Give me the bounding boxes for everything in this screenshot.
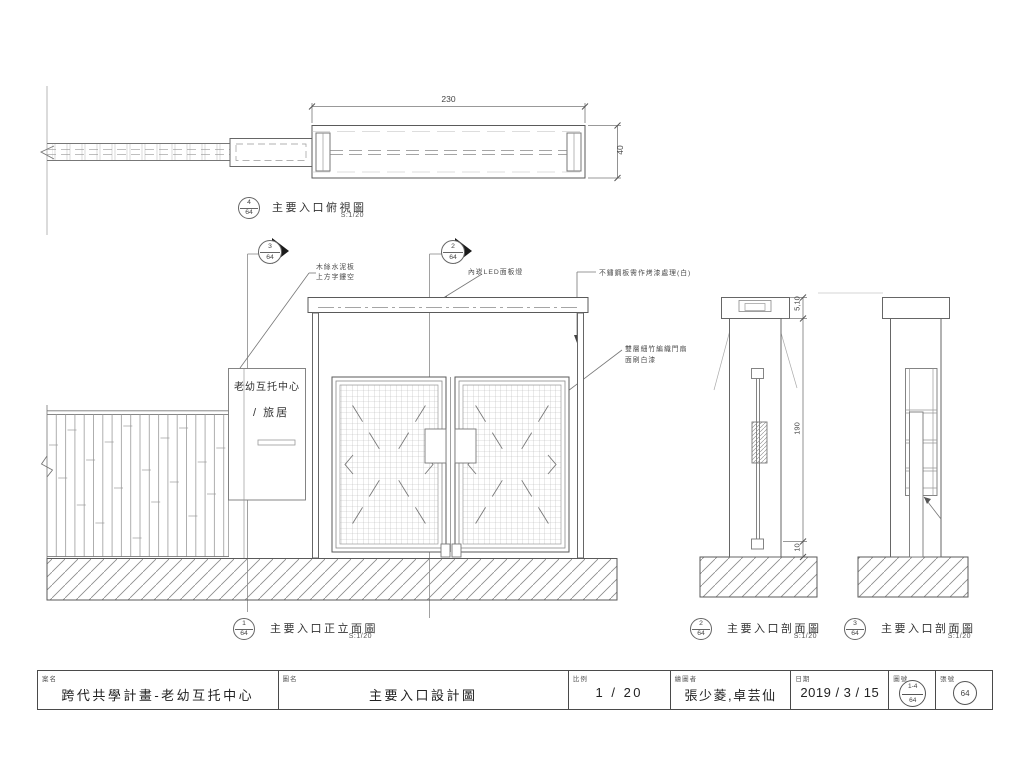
- plan-dim-depth: 40: [615, 138, 625, 162]
- plan-ref-sheet: 64: [239, 208, 259, 218]
- scale-value: 1 / 20: [569, 685, 670, 700]
- section2-view-scale: S:1/20: [765, 633, 817, 640]
- section2-ref-sheet: 64: [691, 629, 711, 639]
- drawing-number-bottom: 64: [900, 696, 925, 705]
- titleblock-scale-cell: 比例 1 / 20: [569, 671, 671, 709]
- titleblock-drawing-number-cell: 圖號 1-4 64: [889, 671, 936, 709]
- drafter-label: 繪圖者: [675, 673, 698, 683]
- drawing-sheet: 3 64 2 64 230 40 5,10 190 10 木絲水泥板 上方字鏤空…: [0, 0, 1024, 768]
- section3-ref-number: 3: [845, 619, 865, 629]
- cad-linework: [0, 0, 1024, 768]
- sheet-number-label: 張號: [940, 673, 955, 683]
- ground-hatch-elevation: [47, 559, 617, 601]
- titleblock-drafter-cell: 繪圖者 張少菱,卓芸仙: [671, 671, 792, 709]
- drawing-number-circle: 1-4 64: [899, 680, 926, 707]
- project-name-value: 跨代共學計畫-老幼互托中心: [38, 685, 278, 704]
- section2-dim-bottom: 10: [793, 534, 802, 562]
- section2-view-reference: 2 64: [690, 618, 712, 640]
- titleblock-date-cell: 日期 2019 / 3 / 15: [791, 671, 889, 709]
- titleblock-drawing-cell: 圖名 主要入口設計圖: [279, 671, 569, 709]
- annotation-led-panel: 內崁LED面板燈: [468, 266, 523, 276]
- plan-dim-width: 230: [312, 94, 585, 104]
- section-3-linework: [818, 293, 968, 597]
- titleblock-project-cell: 案名 跨代共學計畫-老幼互托中心: [38, 671, 279, 709]
- section2-dim-mid: 190: [793, 415, 802, 443]
- annotation-cement-board-line2: 上方字鏤空: [316, 271, 355, 281]
- sheet-number-value: 64: [954, 682, 976, 704]
- annotation-cement-board-line1: 木絲水泥板: [316, 261, 355, 271]
- sign-text-line2: / 旅居: [253, 404, 289, 420]
- drawing-number-top: 1-4: [900, 682, 925, 691]
- section3-view-reference: 3 64: [844, 618, 866, 640]
- annotation-bamboo-door-line1: 雙層細竹編織門扇: [625, 343, 687, 353]
- drawing-name-label: 圖名: [283, 673, 298, 683]
- plan-ref-number: 4: [239, 198, 259, 208]
- section-marker-3: 3 64: [258, 240, 282, 264]
- drawing-number-divider: [902, 694, 923, 695]
- section3-view-scale: S:1/20: [919, 633, 971, 640]
- elevation-ref-sheet: 64: [234, 629, 254, 639]
- titleblock-sheet-number-cell: 張號 64: [936, 671, 992, 709]
- sheet-number-circle: 64: [953, 681, 977, 705]
- plan-view-scale: S:1/20: [312, 212, 364, 219]
- section-marker-2: 2 64: [441, 240, 465, 264]
- date-value: 2019 / 3 / 15: [791, 685, 888, 700]
- plan-view-reference: 4 64: [238, 197, 260, 219]
- marker-2-number: 2: [442, 241, 464, 252]
- marker-3-sheet: 64: [259, 252, 281, 263]
- section2-dim-top: 5,10: [793, 290, 802, 318]
- drawing-name-value: 主要入口設計圖: [279, 685, 568, 704]
- sign-board-linework: [229, 369, 306, 559]
- section2-ref-number: 2: [691, 619, 711, 629]
- section3-ref-sheet: 64: [845, 629, 865, 639]
- date-label: 日期: [795, 673, 810, 683]
- marker-2-sheet: 64: [442, 252, 464, 263]
- marker-3-number: 3: [259, 241, 281, 252]
- drafter-value: 張少菱,卓芸仙: [671, 685, 791, 704]
- elevation-view-scale: S:1/20: [320, 633, 372, 640]
- project-name-label: 案名: [42, 673, 57, 683]
- title-block: 案名 跨代共學計畫-老幼互托中心 圖名 主要入口設計圖 比例 1 / 20 繪圖…: [37, 670, 993, 710]
- elevation-view-reference: 1 64: [233, 618, 255, 640]
- sign-text-line1: 老幼互托中心: [231, 378, 303, 393]
- annotation-bamboo-door-line2: 面刷白漆: [625, 354, 656, 364]
- scale-label: 比例: [573, 673, 588, 683]
- elevation-ref-number: 1: [234, 619, 254, 629]
- annotation-stainless-steel: 不鏽鋼板需作烤漆處理(白): [599, 267, 691, 277]
